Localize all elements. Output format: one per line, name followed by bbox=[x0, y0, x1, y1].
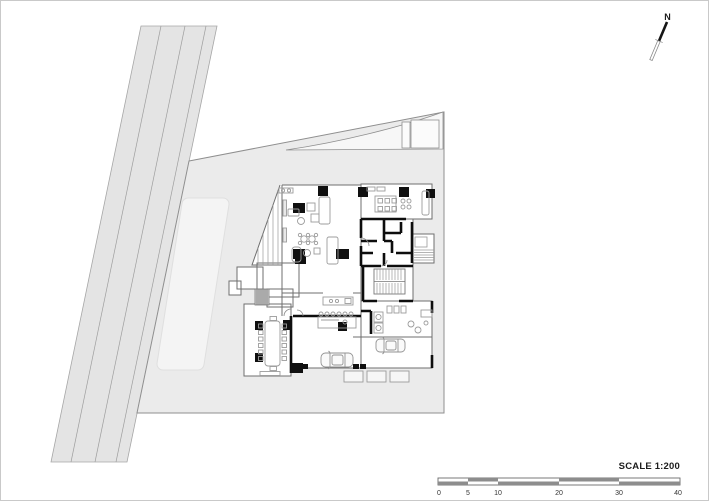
scale-tick: 30 bbox=[615, 490, 623, 497]
floor-plan-drawing: N SCALE 1:200 0 5 10 20 30 40 bbox=[1, 1, 709, 501]
scale-tick: 10 bbox=[494, 490, 502, 497]
gate-room bbox=[402, 122, 410, 148]
entrance-ramp-hatch bbox=[255, 289, 269, 305]
parking-stalls bbox=[344, 371, 409, 382]
scale-tick: 5 bbox=[466, 490, 470, 497]
car-icon bbox=[376, 337, 405, 354]
parking-stall bbox=[367, 371, 386, 382]
scale-tick: 20 bbox=[555, 490, 563, 497]
shelf bbox=[283, 200, 287, 216]
scale-bar: SCALE 1:200 0 5 10 20 30 40 bbox=[437, 461, 682, 497]
scale-title: SCALE 1:200 bbox=[619, 461, 680, 472]
floor-plan-sheet: N SCALE 1:200 0 5 10 20 30 40 bbox=[0, 0, 709, 501]
car-icon bbox=[321, 351, 353, 369]
north-arrow-icon: N bbox=[650, 12, 671, 61]
scale-tick-labels: 0 5 10 20 30 40 bbox=[437, 490, 682, 497]
scale-tick: 0 bbox=[437, 490, 441, 497]
gate-room bbox=[411, 120, 439, 148]
parking-stall bbox=[344, 371, 363, 382]
north-label: N bbox=[664, 12, 671, 22]
parking-stall bbox=[390, 371, 409, 382]
shelf bbox=[283, 228, 287, 242]
scale-tick: 40 bbox=[674, 490, 682, 497]
